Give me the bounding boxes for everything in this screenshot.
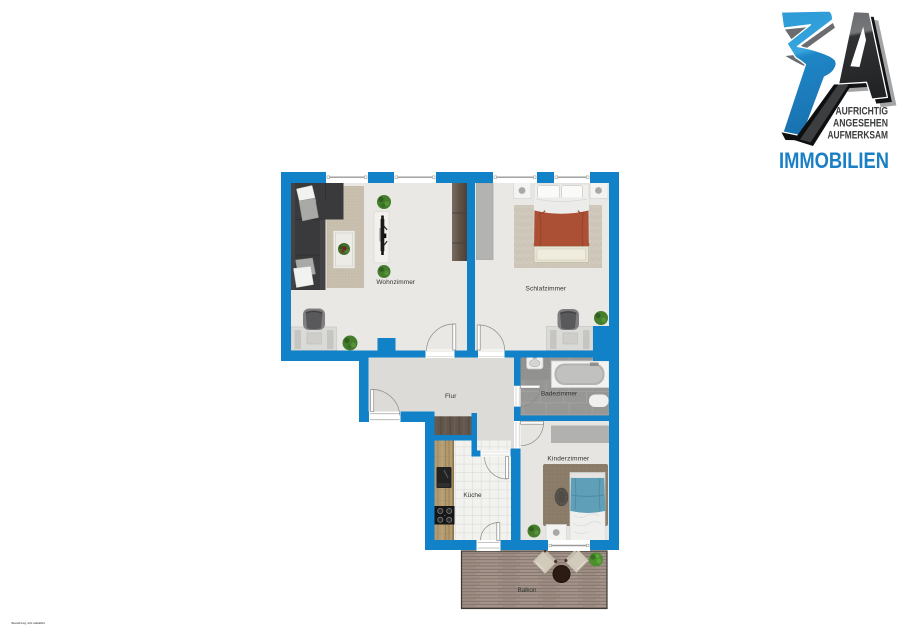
svg-text:ANGESEHEN: ANGESEHEN — [833, 118, 888, 130]
svg-text:Badezimmer: Badezimmer — [541, 390, 578, 397]
svg-text:Flur: Flur — [445, 393, 457, 400]
svg-text:IMMOBILIEN: IMMOBILIEN — [779, 148, 889, 173]
svg-text:Kinderzimmer: Kinderzimmer — [547, 456, 590, 463]
svg-text:Bauzeichnung, nicht maßstäblic: Bauzeichnung, nicht maßstäblich — [12, 621, 46, 625]
svg-text:Wohnzimmer: Wohnzimmer — [376, 279, 416, 286]
svg-text:AUFMERKSAM: AUFMERKSAM — [828, 130, 889, 142]
svg-text:Balkon: Balkon — [518, 587, 537, 594]
svg-text:Küche: Küche — [463, 492, 482, 499]
svg-text:Schlafzimmer: Schlafzimmer — [526, 286, 567, 293]
svg-text:AUFRICHTIG: AUFRICHTIG — [836, 106, 889, 118]
